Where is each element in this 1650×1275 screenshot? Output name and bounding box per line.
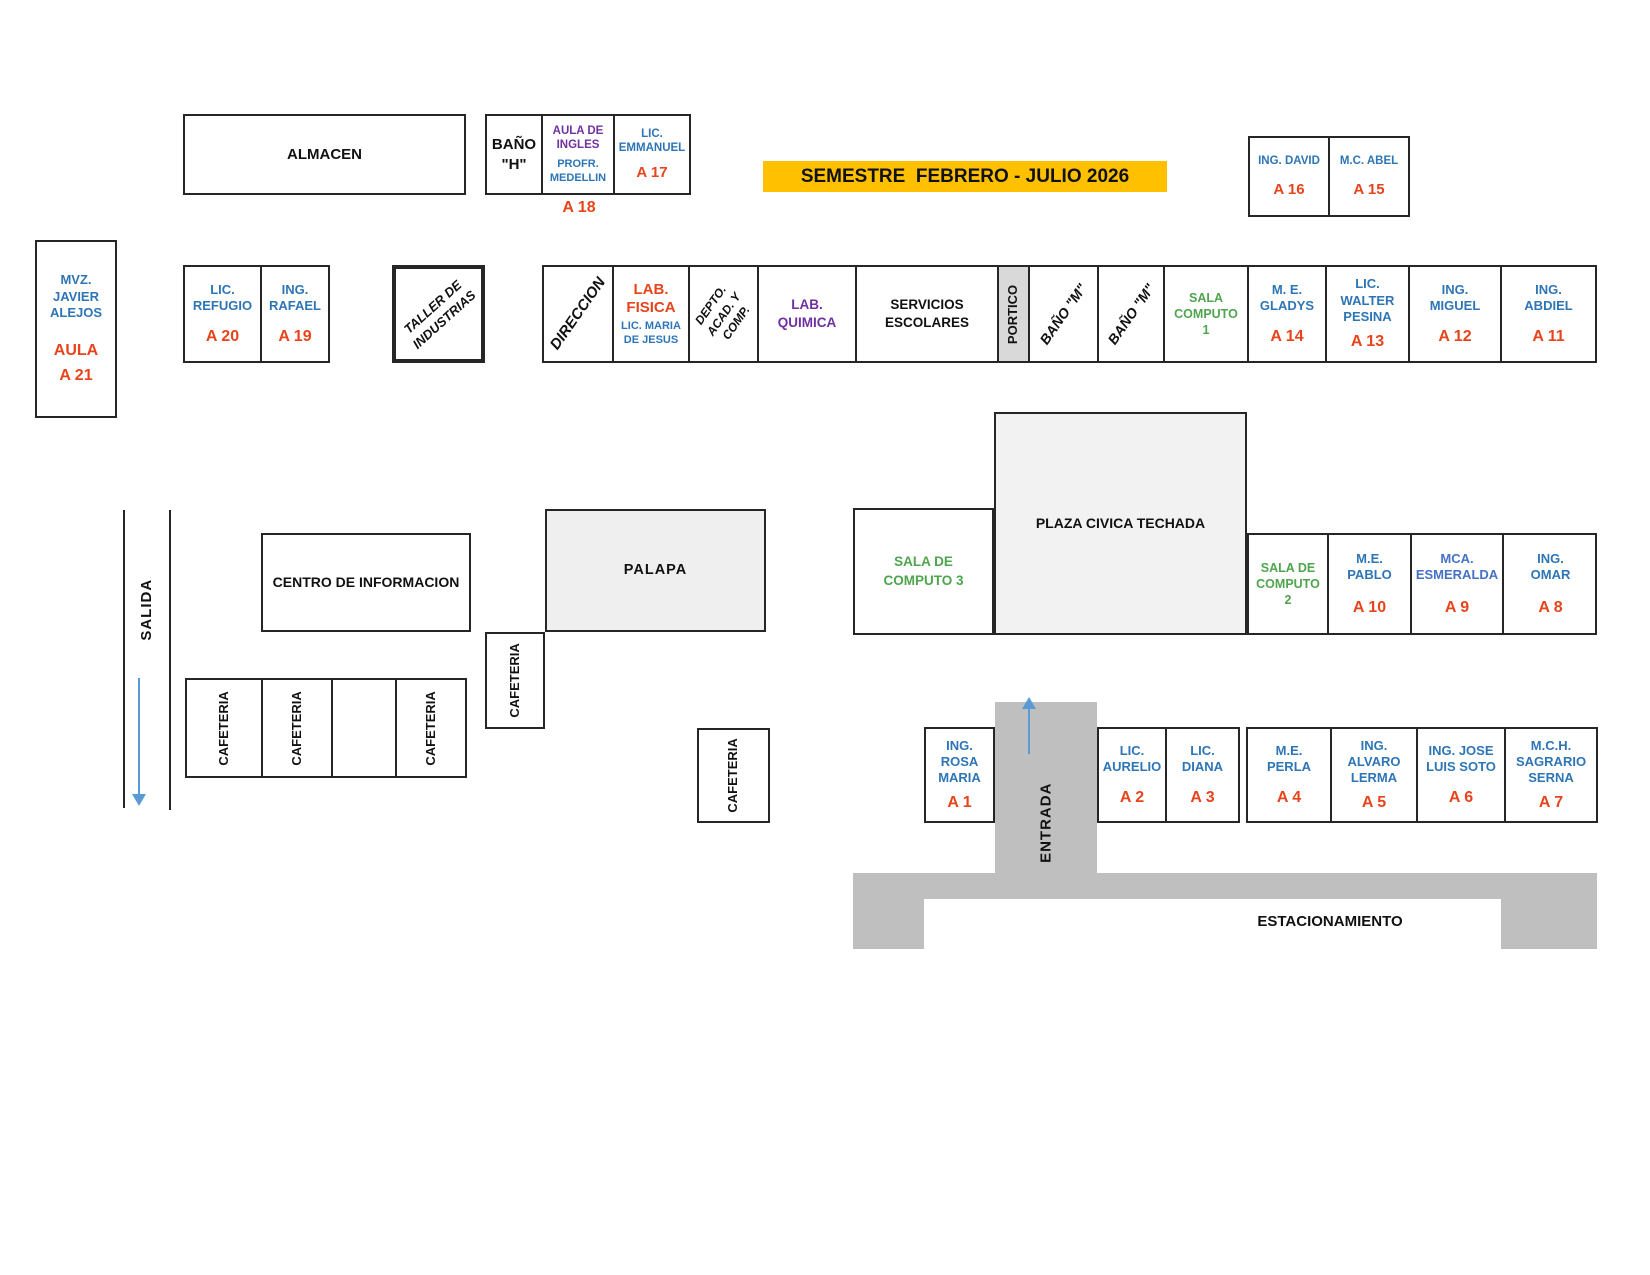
room-a10-name: M.E. PABLO: [1341, 551, 1399, 584]
room-a14: M. E. GLADYS A 14: [1247, 267, 1325, 361]
room-a16-code: A 16: [1273, 181, 1304, 199]
room-a8: ING. OMAR A 8: [1502, 535, 1597, 633]
a20-a19-block: LIC. REFUGIO A 20 ING. RAFAEL A 19: [183, 265, 330, 363]
sala-computo-2-label: SALA DE COMPUTO 2: [1255, 560, 1321, 609]
salida-label-wrap: SALIDA: [108, 545, 186, 675]
cafeteria-box-south: CAFETERIA: [697, 728, 770, 823]
plaza-civica-techada: PLAZA CIVICA TECHADA: [994, 412, 1247, 635]
lab-quimica-label: LAB. QUIMICA: [772, 296, 842, 331]
room-a9: MCA. ESMERALDA A 9: [1410, 535, 1502, 633]
aula-ingles-label: AULA DE INGLES: [547, 124, 609, 153]
room-taller-industrias: TALLER DE INDUSTRIAS: [392, 265, 485, 363]
road-bar: [853, 873, 1597, 899]
room-lab-fisica: LAB. FISICA LIC. MARIA DE JESUS: [612, 267, 688, 361]
cafeteria-label-1: CAFETERIA: [507, 643, 524, 717]
room-a5-name: ING. ALVARO LERMA: [1344, 738, 1404, 787]
room-direccion: DIRECCION: [544, 267, 612, 361]
sala2-a10-a9-a8-block: SALA DE COMPUTO 2 M.E. PABLO A 10 MCA. E…: [1247, 533, 1597, 635]
cafeteria-label-5: CAFETERIA: [725, 738, 742, 812]
room-a3: LIC. DIANA A 3: [1165, 729, 1238, 821]
room-a10: M.E. PABLO A 10: [1327, 535, 1410, 633]
room-a12: ING. MIGUEL A 12: [1408, 267, 1500, 361]
room-a4-code: A 4: [1277, 788, 1301, 807]
entrada-label: ENTRADA: [1036, 782, 1056, 862]
room-a7-code: A 7: [1539, 793, 1563, 812]
palapa-label: PALAPA: [624, 561, 687, 580]
room-a1-name: ING. ROSA MARIA: [927, 738, 993, 787]
room-a6-code: A 6: [1449, 788, 1473, 807]
salida-arrow-line: [138, 678, 140, 796]
room-a13: LIC. WALTER PESINA A 13: [1325, 267, 1408, 361]
cafeteria-box-palapa: CAFETERIA: [485, 632, 545, 729]
room-lab-quimica: LAB. QUIMICA: [757, 267, 855, 361]
bano-h-label: BAÑO "H": [491, 135, 537, 174]
room-a19-name: ING. RAFAEL: [266, 282, 324, 315]
room-a17-name: LIC. EMMANUEL: [618, 127, 686, 156]
banoh-aulaingles-a17-block: BAÑO "H" AULA DE INGLES PROFR. MEDELLIN …: [485, 114, 691, 195]
road-leg-right: [1501, 899, 1597, 949]
sala-computo-3-label: SALA DE COMPUTO 3: [876, 553, 972, 589]
semester-banner: SEMESTRE FEBRERO - JULIO 2026: [763, 161, 1167, 192]
room-a16: ING. DAVID A 16: [1250, 138, 1328, 215]
room-a3-name: LIC. DIANA: [1178, 743, 1228, 776]
room-a1-code: A 1: [947, 793, 971, 812]
room-a19-code: A 19: [278, 327, 311, 346]
taller-label: TALLER DE INDUSTRIAS: [396, 273, 481, 354]
room-a20-name: LIC. REFUGIO: [192, 282, 254, 315]
a4-a7-block: M.E. PERLA A 4 ING. ALVARO LERMA A 5 ING…: [1246, 727, 1598, 823]
room-a21-label: AULA: [54, 341, 98, 360]
room-portico: PORTICO: [997, 267, 1028, 361]
entrada-arrow-up-icon: [1022, 697, 1036, 709]
estacionamiento-label-wrap: ESTACIONAMIENTO: [1220, 908, 1440, 936]
room-a15-name: M.C. ABEL: [1340, 154, 1398, 168]
centro-de-informacion: CENTRO DE INFORMACION: [261, 533, 471, 632]
room-bano-h: BAÑO "H": [487, 116, 541, 193]
room-a16-name: ING. DAVID: [1258, 154, 1320, 168]
room-aula-ingles: AULA DE INGLES PROFR. MEDELLIN: [541, 116, 613, 193]
room-a6: ING. JOSE LUIS SOTO A 6: [1416, 729, 1504, 821]
estacionamiento-label: ESTACIONAMIENTO: [1257, 912, 1402, 932]
room-a4: M.E. PERLA A 4: [1248, 729, 1330, 821]
room-a2-name: LIC. AURELIO: [1102, 743, 1162, 776]
room-a10-code: A 10: [1353, 598, 1386, 617]
room-a9-code: A 9: [1445, 598, 1469, 617]
lab-fisica-label: LAB. FISICA: [624, 281, 678, 317]
cafeteria-label-4: CAFETERIA: [423, 691, 440, 765]
salida-label: SALIDA: [137, 579, 157, 641]
room-a17-code: A 17: [636, 164, 667, 182]
salida-arrow-down-icon: [132, 794, 146, 806]
direccion-label: DIRECCION: [546, 274, 610, 354]
room-a8-code: A 8: [1538, 598, 1562, 617]
room-a5: ING. ALVARO LERMA A 5: [1330, 729, 1416, 821]
room-a7-name: M.C.H. SAGRARIO SERNA: [1516, 738, 1586, 787]
room-a1: ING. ROSA MARIA A 1: [924, 727, 995, 823]
a2-a3-block: LIC. AURELIO A 2 LIC. DIANA A 3: [1097, 727, 1240, 823]
room-a14-code: A 14: [1270, 327, 1303, 346]
a16-a15-block: ING. DAVID A 16 M.C. ABEL A 15: [1248, 136, 1410, 217]
room-a11: ING. ABDIEL A 11: [1500, 267, 1595, 361]
servicios-label: SERVICIOS ESCOLARES: [882, 296, 972, 331]
plaza-label: PLAZA CIVICA TECHADA: [1036, 514, 1205, 532]
bano-m-2-label: BAÑO "M": [1103, 280, 1158, 348]
room-a4-name: M.E. PERLA: [1264, 743, 1314, 776]
cafeteria-cell-empty: [331, 680, 395, 776]
room-a2: LIC. AURELIO A 2: [1099, 729, 1165, 821]
room-a21-name: MVZ. JAVIER ALEJOS: [46, 272, 106, 321]
room-a17: LIC. EMMANUEL A 17: [613, 116, 689, 193]
room-a12-code: A 12: [1438, 327, 1471, 346]
cafeteria-label-2: CAFETERIA: [216, 691, 233, 765]
depto-label: DEPTO. ACAD. Y COMP.: [681, 267, 766, 361]
room-a11-code: A 11: [1532, 327, 1564, 346]
room-a7: M.C.H. SAGRARIO SERNA A 7: [1504, 729, 1596, 821]
sala-computo-1-label: SALA COMPUTO 1: [1174, 290, 1238, 339]
room-sala-computo-1: SALA COMPUTO 1: [1163, 267, 1247, 361]
campus-map: ALMACEN BAÑO "H" AULA DE INGLES PROFR. M…: [0, 0, 1650, 1275]
maria-de-jesus-label: LIC. MARIA DE JESUS: [616, 320, 686, 348]
room-a15: M.C. ABEL A 15: [1328, 138, 1408, 215]
road-leg-left: [853, 899, 924, 949]
room-a12-name: ING. MIGUEL: [1425, 282, 1485, 315]
room-almacen: ALMACEN: [183, 114, 466, 195]
portico-label: PORTICO: [1005, 284, 1022, 343]
room-a20-code: A 20: [206, 327, 239, 346]
room-a13-name: LIC. WALTER PESINA: [1338, 276, 1398, 325]
room-a18-code: A 18: [529, 197, 629, 219]
room-sala-computo-2: SALA DE COMPUTO 2: [1249, 535, 1327, 633]
room-a5-code: A 5: [1362, 793, 1386, 812]
room-a13-code: A 13: [1351, 332, 1384, 351]
room-a14-name: M. E. GLADYS: [1257, 282, 1317, 315]
room-a20: LIC. REFUGIO A 20: [185, 267, 260, 361]
room-a6-name: ING. JOSE LUIS SOTO: [1426, 743, 1496, 776]
cafeteria-cell-1: CAFETERIA: [187, 680, 261, 776]
centro-label: CENTRO DE INFORMACION: [273, 573, 460, 591]
room-bano-m-1: BAÑO "M": [1028, 267, 1097, 361]
room-a11-name: ING. ABDIEL: [1519, 282, 1579, 315]
entrada-label-wrap: ENTRADA: [995, 755, 1097, 890]
main-row-strip: DIRECCION LAB. FISICA LIC. MARIA DE JESU…: [542, 265, 1597, 363]
entrada-arrow-line: [1028, 708, 1030, 754]
almacen-label: ALMACEN: [287, 145, 362, 165]
semester-banner-text: SEMESTRE FEBRERO - JULIO 2026: [801, 166, 1129, 188]
cafeteria-label-3: CAFETERIA: [289, 691, 306, 765]
cafeteria-row-block: CAFETERIA CAFETERIA CAFETERIA: [185, 678, 467, 778]
room-a21: MVZ. JAVIER ALEJOS AULA A 21: [35, 240, 117, 418]
room-a8-name: ING. OMAR: [1522, 551, 1580, 584]
room-a15-code: A 15: [1353, 181, 1384, 199]
room-depto-acad: DEPTO. ACAD. Y COMP.: [688, 267, 757, 361]
room-a19: ING. RAFAEL A 19: [260, 267, 328, 361]
a18-code-text: A 18: [562, 198, 595, 217]
room-a2-code: A 2: [1120, 788, 1144, 807]
cafeteria-cell-4: CAFETERIA: [395, 680, 465, 776]
room-bano-m-2: BAÑO "M": [1097, 267, 1163, 361]
bano-m-1-label: BAÑO "M": [1036, 280, 1091, 348]
palapa: PALAPA: [545, 509, 766, 632]
room-a9-name: MCA. ESMERALDA: [1415, 551, 1499, 584]
profr-medellin-label: PROFR. MEDELLIN: [547, 158, 609, 186]
room-a21-code: A 21: [59, 366, 92, 385]
room-a3-code: A 3: [1190, 788, 1214, 807]
room-sala-computo-3: SALA DE COMPUTO 3: [853, 508, 994, 635]
cafeteria-cell-2: CAFETERIA: [261, 680, 331, 776]
room-servicios-escolares: SERVICIOS ESCOLARES: [855, 267, 997, 361]
